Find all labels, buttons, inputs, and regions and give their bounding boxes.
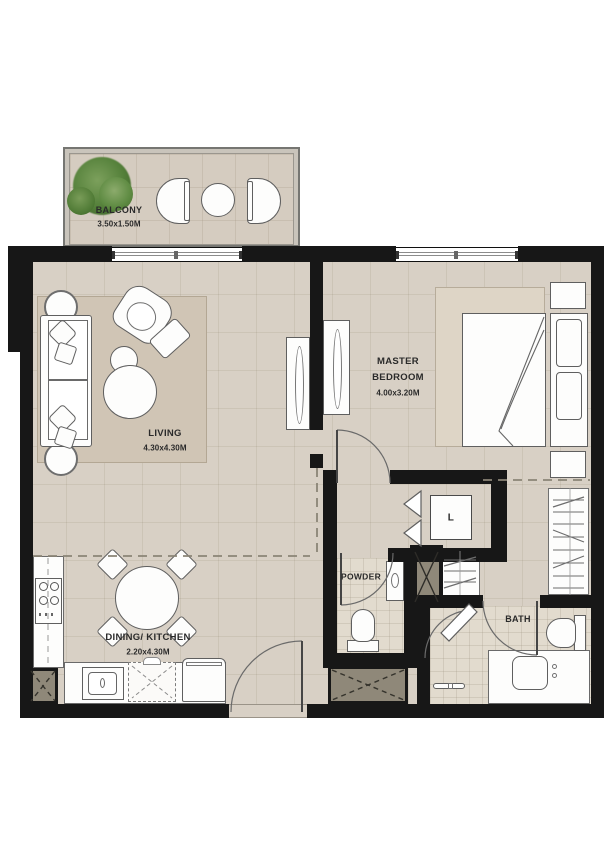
dining-kitchen-dimensions: 2.20x4.30M	[126, 649, 169, 658]
living-label: LIVING	[148, 429, 181, 439]
master-bedroom-label-line1: MASTER	[377, 357, 419, 367]
bifold-door-icon	[404, 520, 421, 546]
dining-kitchen-label: DINING/ KITCHEN	[105, 633, 190, 643]
bath-label: BATH	[505, 615, 531, 625]
floor-plan: BALCONY 3.50x1.50M L	[0, 0, 613, 867]
bifold-door-icon	[404, 491, 421, 517]
plan-linework	[0, 0, 613, 867]
living-dimensions: 4.30x4.30M	[143, 445, 186, 454]
shaft-cross	[31, 671, 55, 701]
linen-shelf-lines	[444, 551, 476, 595]
bed-fold	[499, 317, 544, 446]
master-bedroom-label-line2: BEDROOM	[372, 373, 424, 383]
door-swing-icon	[337, 430, 390, 483]
powder-label: POWDER	[341, 572, 381, 581]
door-swing-icon	[231, 641, 302, 712]
wardrobe-hangers	[553, 488, 584, 595]
shower-icon	[441, 604, 477, 641]
door-swing-icon	[483, 601, 537, 655]
master-bedroom-dimensions: 4.00x3.20M	[376, 390, 419, 399]
